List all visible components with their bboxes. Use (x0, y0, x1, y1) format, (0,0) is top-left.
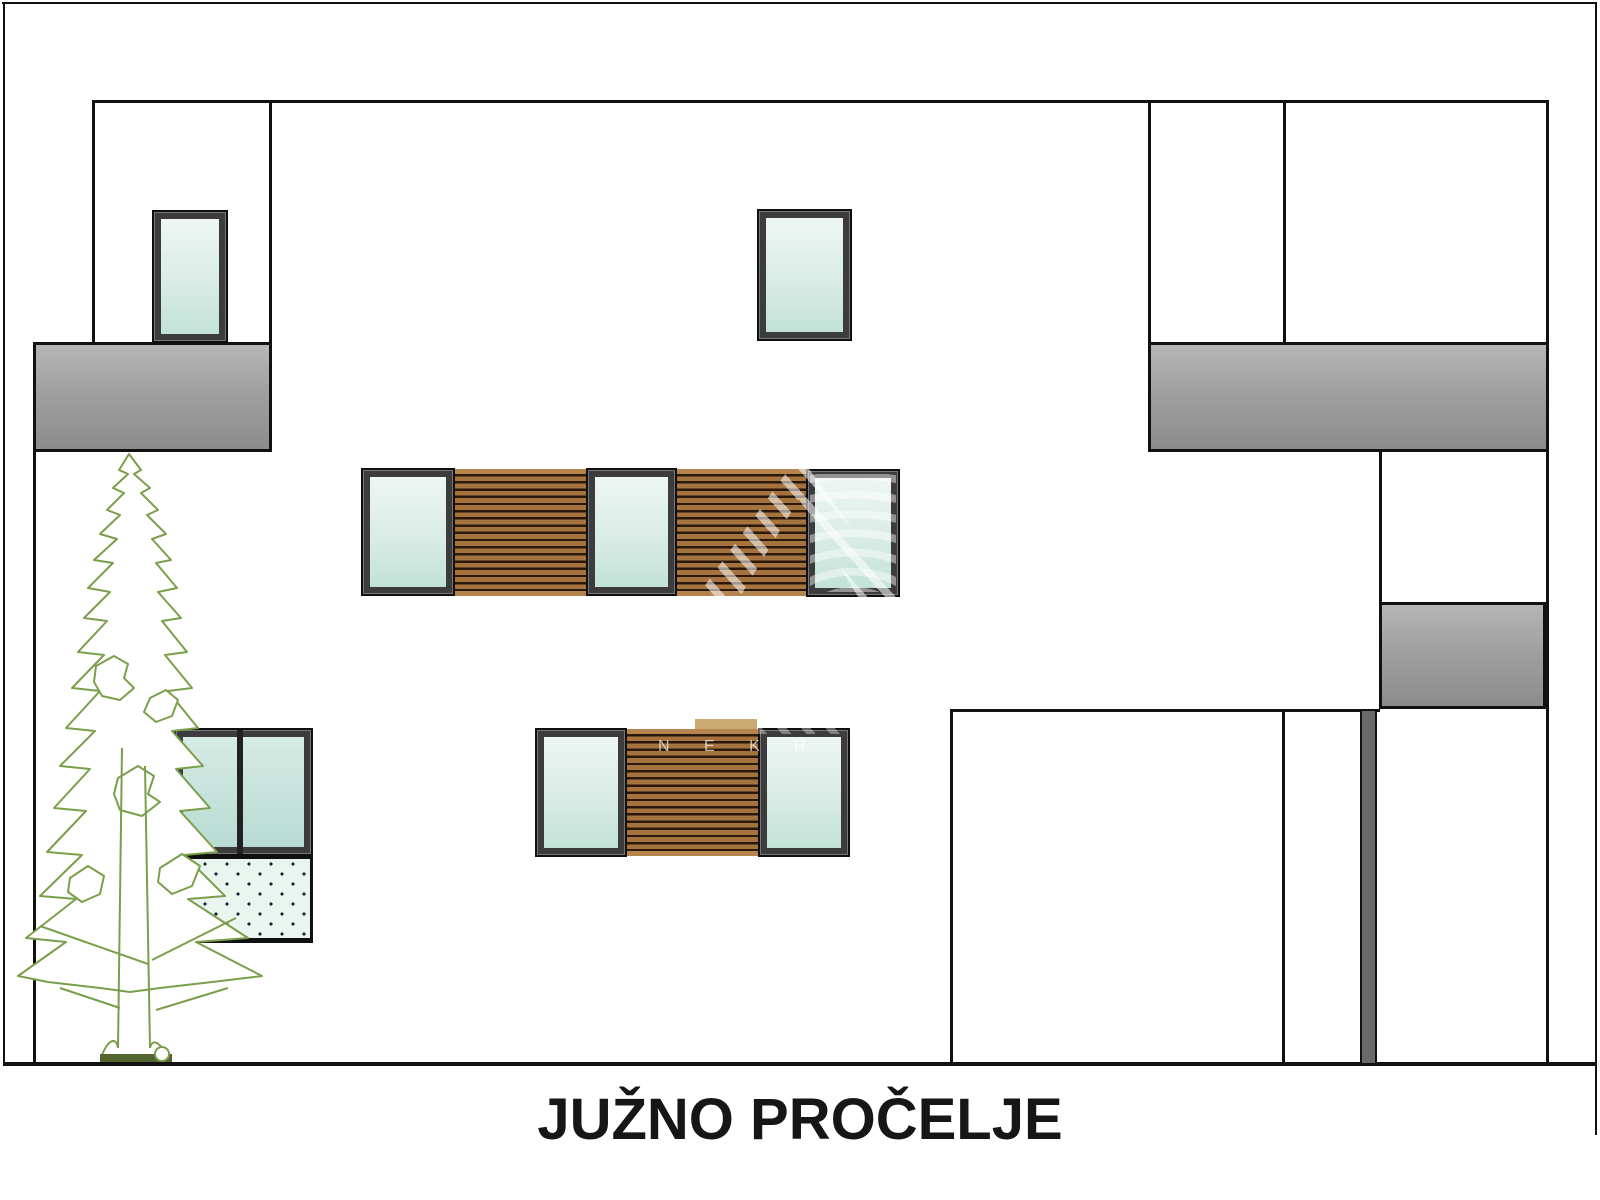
band2-window-left (535, 728, 627, 857)
top-middle-window-glass (766, 218, 843, 332)
right-upper-divider-1 (1148, 100, 1151, 342)
frame-border-top (2, 2, 1597, 4)
right-upper-divider-2 (1283, 100, 1286, 342)
band1-window-2-glass (595, 477, 668, 587)
top-middle-window (757, 209, 852, 341)
tree-canopy (18, 454, 262, 992)
frame-border-right (1595, 2, 1597, 1135)
tower-window (152, 210, 228, 343)
balcony-right (1148, 342, 1549, 452)
lower-right-left-wall (950, 709, 953, 1063)
right-mid-divider (1379, 452, 1382, 604)
lower-right-divider (1282, 709, 1285, 1063)
building-right-wall (1546, 100, 1549, 1063)
band1-window-1 (361, 468, 455, 596)
band1-window-2 (586, 468, 677, 596)
drawing-title: JUŽNO PROČELJE (0, 1088, 1600, 1152)
watermark-logo-waves (810, 474, 896, 592)
tower-window-glass (161, 219, 219, 334)
lower-right-ledge (950, 709, 1380, 712)
watermark-text: N E K R (658, 738, 878, 756)
band2-window-left-glass (544, 737, 618, 848)
balcony-left (33, 342, 272, 452)
tree-base-bush (155, 1047, 169, 1061)
band1-window-1-glass (370, 477, 446, 587)
elevation-drawing: N E K R JUŽNO PROČELJE (0, 0, 1600, 1200)
watermark-frame-dashes (758, 722, 852, 734)
dark-pillar (1360, 711, 1377, 1063)
band1-wood-panel-1 (455, 469, 586, 596)
building-top-edge (92, 100, 1548, 103)
watermark-tan-band (695, 719, 757, 729)
tree-line-drawing (0, 448, 300, 1068)
balcony-small-right (1379, 602, 1546, 709)
left-tower-left-wall (92, 100, 95, 342)
